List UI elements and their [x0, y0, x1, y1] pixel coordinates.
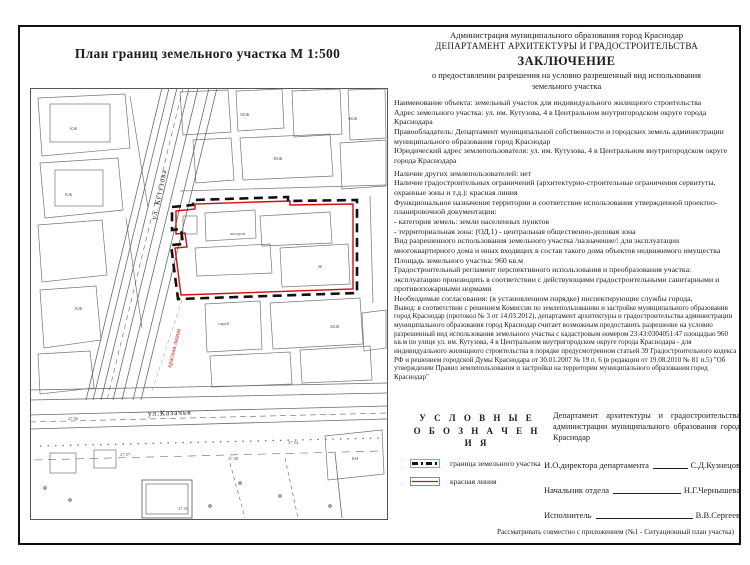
signature-name: Н.Г.Чернышева: [684, 485, 740, 495]
map-annotation: КЖ: [75, 306, 83, 311]
plot-boundary-swatch-icon: [410, 459, 440, 468]
map-annotation: сарай: [218, 321, 229, 326]
map-annotation: 5КЖ: [240, 112, 250, 117]
doc-paragraph: Вид разрешенного использования земельног…: [394, 236, 739, 255]
department-line: ДЕПАРТАМЕНТ АРХИТЕКТУРЫ И ГРАДОСТРОИТЕЛЬ…: [394, 41, 739, 51]
signature-line: [596, 518, 693, 519]
doc-paragraph: Наличие других землепользователей: нет: [394, 169, 739, 179]
signature-line: [653, 468, 688, 469]
legend-item-boundary: граница земельного участка: [406, 459, 548, 468]
signature-row-executor: Исполнитель В.В.Сергеев: [544, 510, 740, 520]
document-page: План границ земельного участка М 1:500: [0, 0, 750, 565]
map-annotation: 27.54: [288, 440, 299, 445]
doc-paragraph: Наличие градостроительных ограничений (а…: [394, 178, 739, 197]
signature-block: И.О.директора департамента С.Д.Кузнецов …: [544, 460, 740, 535]
document-body: Наименование объекта: земельный участок …: [394, 98, 739, 382]
doc-paragraph: Градостроительный регламент перспективно…: [394, 265, 739, 294]
legend-label-boundary: граница земельного участка: [450, 459, 541, 468]
doc-paragraph: Необходимые согласования: (в установленн…: [394, 294, 739, 304]
signature-row-director: И.О.директора департамента С.Д.Кузнецов: [544, 460, 740, 470]
doc-paragraph: - территориальная зона: (ОД.1) - централ…: [394, 227, 739, 237]
legend-title-line-2: О Б О З Н А Ч Е Н И Я: [406, 425, 548, 450]
map-annotation: КЖ: [70, 126, 78, 131]
signature-line: [613, 493, 681, 494]
map-annotation: 4КЖ: [348, 116, 358, 121]
signature-label: Начальник отдела: [544, 485, 609, 495]
legend-title-line-1: У С Л О В Н Ы Е: [406, 412, 548, 425]
legend-label-red-line: красная линия: [450, 477, 497, 486]
map-annotation: КЖ: [65, 192, 73, 197]
document-subtitle-2: земельного участка: [394, 82, 739, 93]
document-text-column: Администрация муниципального образования…: [394, 30, 739, 382]
signature-name: С.Д.Кузнецов: [691, 460, 741, 470]
map-annotation: 27.58: [228, 456, 239, 461]
plot-map-svg: ул. Кутузова красная линия ул.Казачья КЖ…: [30, 88, 388, 520]
map-annotation: КН: [352, 456, 359, 461]
legend: У С Л О В Н Ы Е О Б О З Н А Ч Е Н И Я гр…: [406, 412, 548, 486]
map-annotation: жилдом: [229, 231, 245, 236]
signing-org: Департамент архитектуры и градостроитель…: [553, 410, 740, 443]
signature-label: Исполнитель: [544, 510, 592, 520]
legend-item-red-line: красная линия: [406, 477, 548, 486]
map-annotation: 27.56: [68, 416, 79, 421]
org-line: Администрация муниципального образования…: [394, 30, 739, 40]
doc-paragraph: Функциональное назначение территории и с…: [394, 198, 739, 217]
map-annotation: 27.57: [120, 452, 131, 457]
cadastral-map: ул. Кутузова красная линия ул.Казачья КЖ…: [30, 88, 388, 520]
conclusion-paragraph: Вывод: в соответствии с решением Комисси…: [394, 304, 739, 382]
doc-paragraph: Юридический адрес землепользователя: ул.…: [394, 146, 739, 165]
doc-paragraph: - категория земель: земли населенных пун…: [394, 217, 739, 227]
document-title: ЗАКЛЮЧЕНИЕ: [394, 54, 739, 69]
red-line-swatch-icon: [410, 477, 440, 486]
doc-paragraph: Адрес земельного участка: ул. им. Кутузо…: [394, 108, 739, 127]
signature-row-head-of-dept: Начальник отдела Н.Г.Чернышева: [544, 485, 740, 495]
map-annotation: 2КЖ: [330, 324, 340, 329]
map-annotation: 27.50: [178, 506, 189, 511]
document-subtitle-1: о предоставлении разрешения на условно р…: [394, 71, 739, 82]
map-annotation: ЗКЖ: [273, 156, 283, 161]
plan-title: План границ земельного участка М 1:500: [40, 46, 375, 62]
signature-label: И.О.директора департамента: [544, 460, 649, 470]
signature-name: В.В.Сергеев: [696, 510, 740, 520]
doc-paragraph: Правообладатель: Департамент муниципальн…: [394, 127, 739, 146]
footer-note: Рассматривать совместно с приложением (№…: [497, 528, 734, 536]
doc-paragraph: Наименование объекта: земельный участок …: [394, 98, 739, 108]
street-label-kazachya: ул.Казачья: [148, 407, 192, 418]
doc-paragraph: Площадь земельного участка: 960 кв.м: [394, 256, 739, 266]
